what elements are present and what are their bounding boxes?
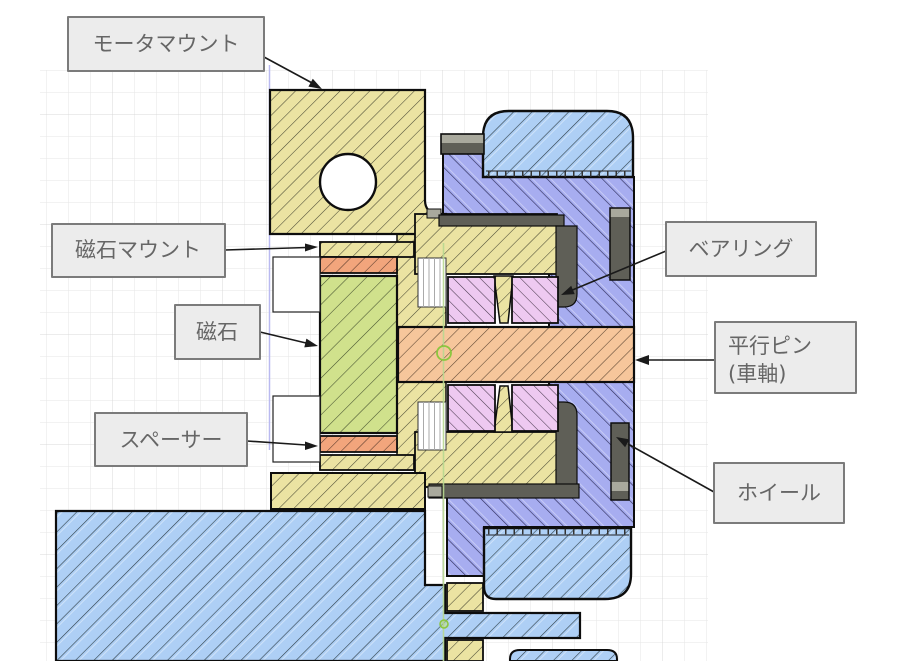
cad-drawing-canvas: モータマウント 磁石マウント 磁石 スペーサー ベアリング (0, 0, 908, 661)
mount-boss-section-1 (447, 583, 483, 611)
bearing-upper-right (512, 277, 558, 323)
lower-part-section (510, 650, 617, 661)
label-text-magnet-mount: 磁石マウント (75, 238, 201, 262)
label-text-pin-line1: 平行ピン (728, 334, 812, 358)
hub-pocket-top-right (610, 208, 630, 280)
tire-section-lower (484, 528, 631, 599)
spacer-bottom (320, 436, 397, 452)
motor-mount-base-flange (271, 473, 425, 509)
label-text-magnet: 磁石 (196, 320, 238, 344)
threaded-bore-upper (418, 258, 446, 307)
magnet-mount-rim-surface-upper (273, 257, 320, 312)
magnet-mount-flange-top (320, 242, 414, 257)
label-text-wheel: ホイール (737, 481, 821, 505)
bearing-lower-left (448, 385, 495, 431)
bearing-lower-right (512, 385, 558, 431)
section-drawing: モータマウント 磁石マウント 磁石 スペーサー ベアリング (0, 0, 908, 661)
bearing-upper-left (448, 277, 495, 323)
spacer-top (320, 257, 397, 273)
motor-mount-screw-hole (320, 154, 376, 210)
parallel-pin-axle (398, 327, 634, 382)
hub-pocket-bottom-right (611, 423, 629, 500)
mount-boss-section-2 (447, 640, 483, 661)
threaded-bore-lower (418, 402, 446, 450)
label-text-spacer: スペーサー (119, 428, 222, 452)
magnet-mount-flange-bottom (320, 455, 414, 470)
label-text-motor-mount: モータマウント (93, 32, 240, 56)
tire-section-upper (483, 111, 633, 177)
label-text-pin-line2: (車軸) (728, 362, 786, 386)
hub-cap-top-left (441, 134, 484, 154)
magnet-mount-rim-surface-lower (273, 396, 320, 462)
label-text-bearing: ベアリング (689, 237, 794, 261)
magnet-section (320, 276, 397, 433)
sketch-point-marker-small (440, 620, 448, 628)
